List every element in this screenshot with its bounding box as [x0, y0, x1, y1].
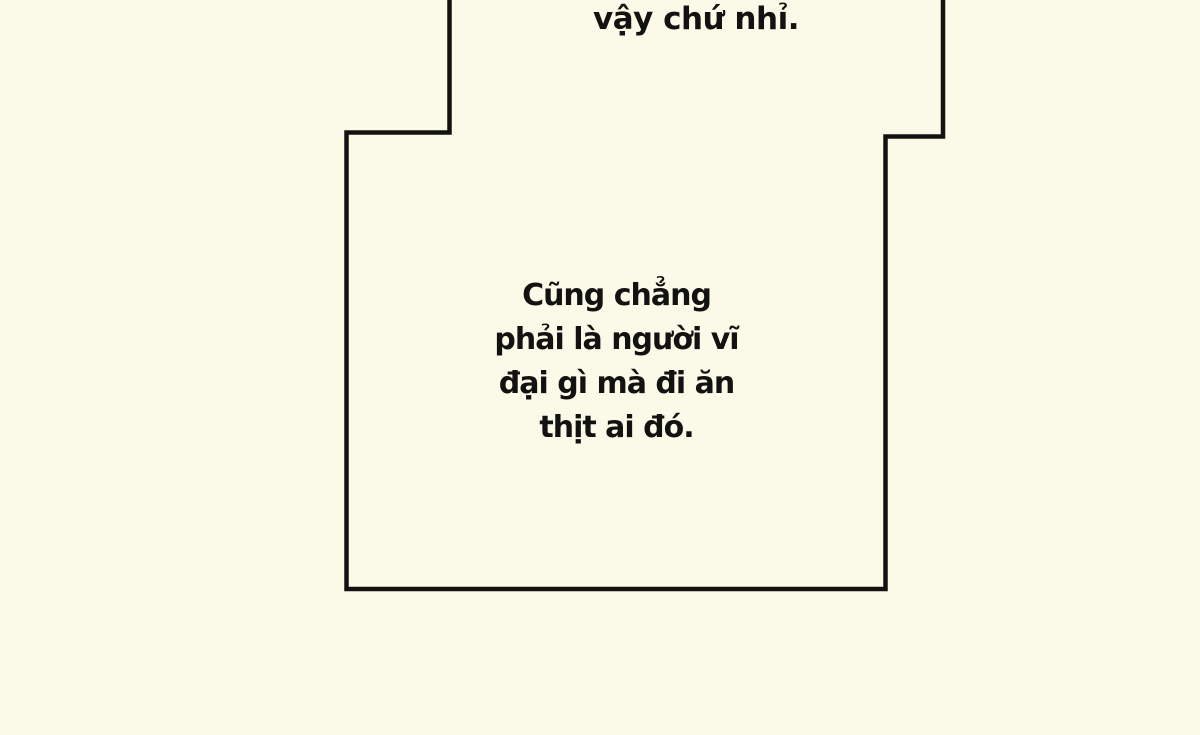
comic-page: vậy chứ nhỉ. Cũng chẳng phải là người vĩ… — [0, 0, 1200, 735]
speech-line: đại gì mà đi ăn — [499, 362, 734, 406]
speech-text-top: vậy chứ nhỉ. — [449, 0, 943, 44]
speech-line: thịt ai đó. — [539, 406, 693, 450]
speech-line: phải là người vĩ — [494, 318, 738, 362]
speech-line: Cũng chẳng — [522, 274, 711, 318]
speech-text-main: Cũng chẳng phải là người vĩ đại gì mà đi… — [346, 134, 887, 589]
